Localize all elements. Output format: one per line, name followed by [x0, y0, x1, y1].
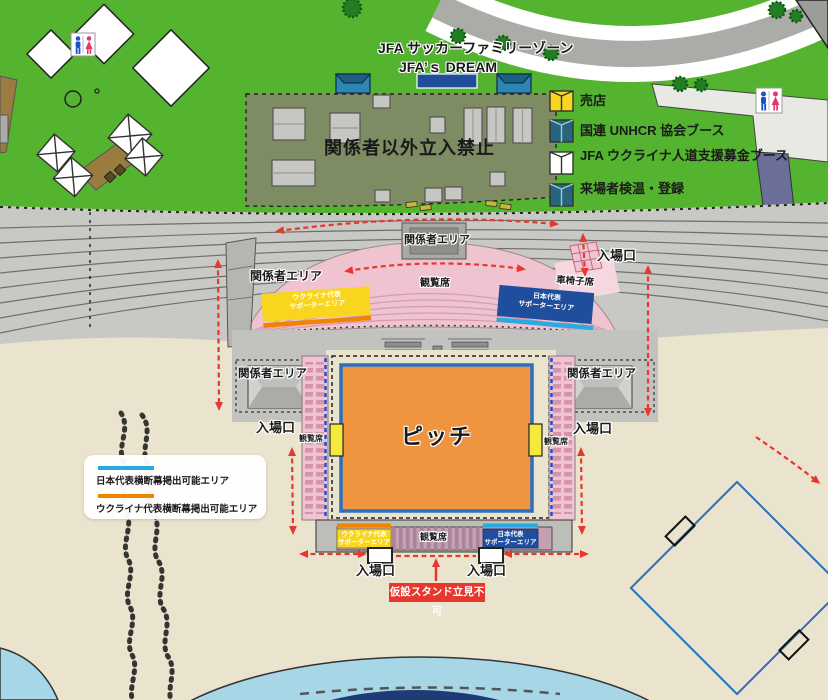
- japan-banner-line-bottom: [483, 524, 538, 528]
- stands-center-label: 観覧席: [420, 278, 450, 290]
- officials-wing-right-label: 関係者エリア: [567, 368, 636, 381]
- banner-legend-box: 日本代表横断幕掲出可能エリア ウクライナ代表横断幕掲出可能エリア: [84, 455, 266, 519]
- gate-left: [368, 548, 392, 563]
- entrance-right-label: 入場口: [573, 422, 612, 437]
- restroom-icon: [71, 33, 95, 56]
- booth-label-registration: 来場者検温・登録: [580, 182, 684, 197]
- pitch-label: ピッチ: [394, 424, 480, 449]
- flow-arrow-left-inner: [292, 450, 293, 532]
- no-standing-tag: 仮設スタンド立見不可: [389, 583, 485, 602]
- teal-tent: [550, 184, 573, 206]
- pond: [0, 648, 705, 700]
- stands-left-label: 観覧席: [299, 434, 323, 443]
- bench-right: [529, 424, 542, 456]
- flow-arrow-right-inner: [581, 450, 582, 532]
- restricted-zone-label: 関係者以外立入禁止: [324, 138, 495, 159]
- stands-right-label: 観覧席: [544, 437, 568, 446]
- japan-banner-legend-label: 日本代表横断幕掲出可能エリア: [96, 473, 254, 487]
- ukraine-banner-legend-label: ウクライナ代表横断幕掲出可能エリア: [96, 501, 254, 515]
- japan-supporter-bottom-label: 日本代表サポーターエリア: [483, 531, 538, 547]
- stands-bottom-label: 観覧席: [420, 532, 447, 542]
- goal: [666, 517, 695, 546]
- booth-label-jfa-ukraine: JFA ウクライナ人道支援募金ブース: [580, 149, 788, 164]
- goal: [779, 630, 808, 659]
- ukraine-supporter-bottom-label: ウクライナ代表サポーターエリア: [337, 531, 391, 547]
- dream-title: JFA’ｓ DREAM: [380, 59, 516, 75]
- entrance-gate-left-label: 入場口: [356, 564, 395, 579]
- gate-right: [479, 548, 503, 563]
- booth-label-shop: 売店: [580, 94, 606, 109]
- yellow-tent: [550, 91, 573, 111]
- ukraine-banner-swatch: [98, 494, 154, 498]
- stage: [417, 74, 477, 88]
- entrance-left-label: 入場口: [256, 421, 295, 436]
- officials-area-top-label: 関係者エリア: [404, 234, 470, 247]
- japan-banner-swatch: [98, 466, 154, 470]
- zone-title: JFA サッカーファミリーゾーン: [378, 40, 558, 56]
- venue-map: JFA サッカーファミリーゾーン JFA’ｓ DREAM 関係者以外立入禁止 売…: [0, 0, 828, 700]
- booth-label-unhcr: 国連 UNHCR 協会ブース: [580, 124, 725, 139]
- officials-wing-left-label: 関係者エリア: [238, 368, 307, 381]
- white-tent: [550, 152, 573, 174]
- entrance-top-right-label: 入場口: [597, 249, 636, 264]
- bench-left: [330, 424, 343, 456]
- entrance-gate-right-label: 入場口: [467, 564, 506, 579]
- ukraine-banner-line-bottom: [337, 524, 391, 528]
- beach-court: [622, 473, 828, 700]
- flow-arrow-br: [756, 437, 818, 482]
- officials-area-left-label: 関係者エリア: [250, 270, 322, 284]
- teal-tent: [550, 120, 573, 142]
- restroom-icon: [756, 88, 782, 113]
